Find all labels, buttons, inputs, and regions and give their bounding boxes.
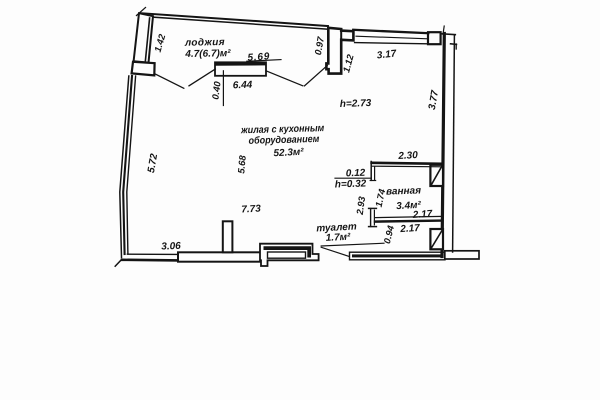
- svg-text:ванная: ванная: [386, 185, 421, 197]
- svg-text:4.7(6.7)м²: 4.7(6.7)м²: [184, 48, 231, 60]
- svg-text:h=2.73: h=2.73: [340, 98, 372, 110]
- svg-text:5.69: 5.69: [247, 51, 270, 64]
- svg-text:5.68: 5.68: [235, 154, 248, 174]
- svg-text:h=0.32: h=0.32: [335, 178, 367, 190]
- svg-text:1.7м²: 1.7м²: [325, 232, 351, 244]
- svg-text:0.40: 0.40: [209, 80, 222, 100]
- svg-text:6.44: 6.44: [233, 80, 253, 92]
- svg-text:2.17: 2.17: [399, 223, 421, 235]
- svg-text:2.30: 2.30: [397, 150, 418, 162]
- svg-text:оборудованием: оборудованием: [248, 134, 319, 147]
- svg-text:52.3м²: 52.3м²: [273, 147, 304, 160]
- svg-text:2.17: 2.17: [411, 209, 433, 221]
- svg-text:лоджия: лоджия: [184, 37, 225, 49]
- svg-text:7.73: 7.73: [241, 203, 261, 215]
- svg-text:3.17: 3.17: [376, 48, 397, 61]
- svg-text:3.06: 3.06: [161, 241, 181, 253]
